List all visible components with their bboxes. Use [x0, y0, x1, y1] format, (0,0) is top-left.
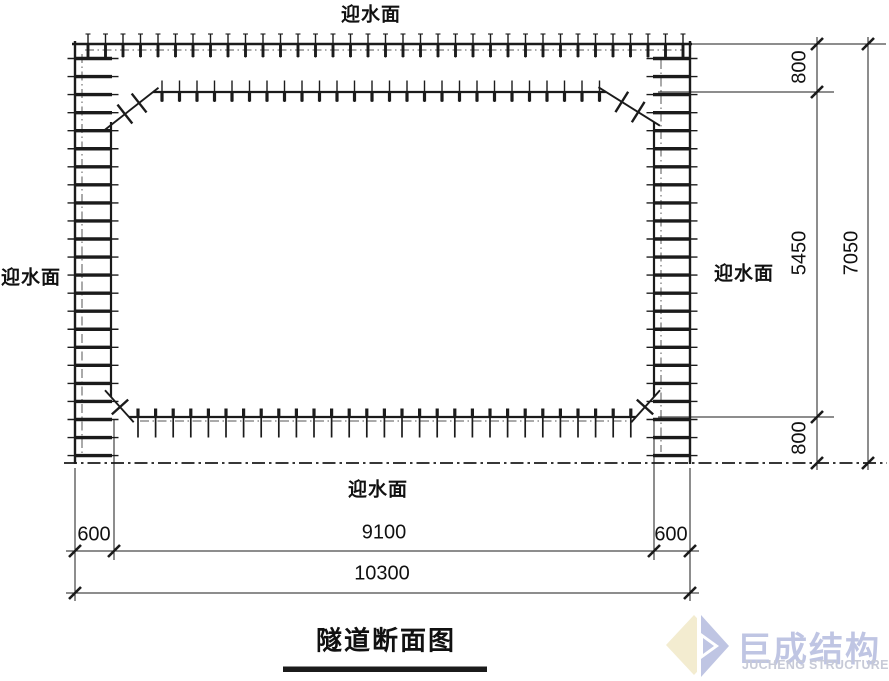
tunnel-section-drawing [0, 0, 889, 681]
water-face-label-right: 迎水面 [714, 259, 774, 286]
dim-right-top-800: 800 [789, 50, 812, 83]
water-face-label-bottom: 迎水面 [348, 475, 408, 502]
dim-bottom-left-600: 600 [77, 524, 110, 547]
dim-bottom-total-10300: 10300 [354, 563, 410, 586]
water-face-label-top: 迎水面 [341, 0, 401, 27]
jucheng-logo-icon [664, 612, 734, 681]
drawing-title: 隧道断面图 [316, 621, 456, 658]
jucheng-logo: 巨成结构 JUCHENG STRUCTURE [664, 612, 889, 681]
water-face-label-left: 迎水面 [1, 263, 61, 290]
dim-bottom-center-9100: 9100 [362, 522, 407, 545]
logo-text-en: JUCHENG STRUCTURE [742, 658, 889, 672]
tunnel-section-sheet: 迎水面 迎水面 迎水面 迎水面 800 5450 800 7050 600 91… [0, 0, 889, 681]
dim-right-total-7050: 7050 [841, 231, 864, 276]
dim-right-bottom-800: 800 [789, 421, 812, 454]
dim-right-mid-5450: 5450 [789, 231, 812, 276]
dim-bottom-right-600: 600 [654, 524, 687, 547]
